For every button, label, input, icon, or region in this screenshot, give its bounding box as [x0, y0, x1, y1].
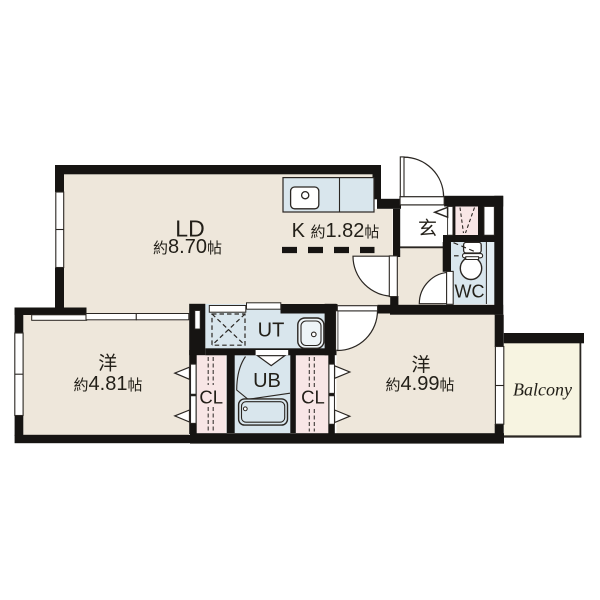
- svg-text:約8.70帖: 約8.70帖: [153, 236, 222, 258]
- svg-text:CL: CL: [199, 386, 223, 407]
- svg-text:Balcony: Balcony: [513, 380, 572, 400]
- svg-text:K 約1.82帖: K 約1.82帖: [292, 220, 380, 242]
- svg-text:UB: UB: [253, 370, 281, 392]
- svg-text:洋: 洋: [98, 353, 117, 375]
- svg-text:約4.81帖: 約4.81帖: [74, 373, 143, 395]
- svg-text:玄: 玄: [418, 218, 437, 240]
- svg-text:WC: WC: [455, 282, 485, 302]
- svg-text:約4.99帖: 約4.99帖: [386, 373, 455, 395]
- svg-text:UT: UT: [258, 320, 285, 342]
- svg-text:CL: CL: [301, 386, 325, 407]
